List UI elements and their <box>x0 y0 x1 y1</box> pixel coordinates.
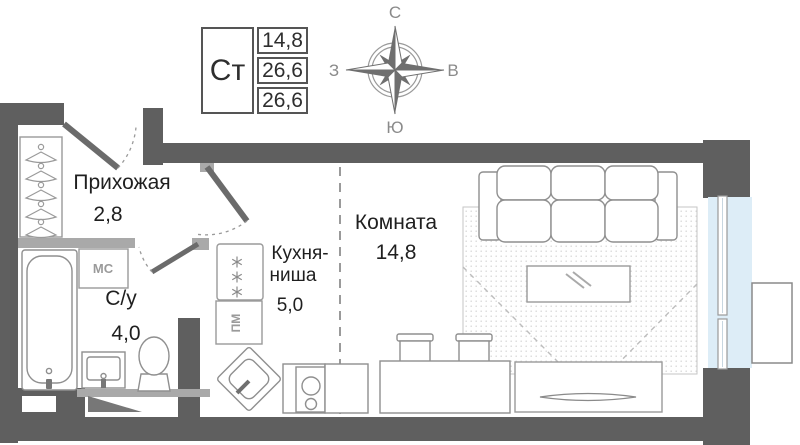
compass-rose: С Ю З В <box>329 3 459 137</box>
compass-north-label: С <box>389 3 401 22</box>
chair <box>397 334 433 362</box>
window-glass <box>708 197 752 368</box>
wall-bottom-outer <box>0 417 705 441</box>
riser-wedge <box>88 396 142 412</box>
dining-table <box>380 361 510 413</box>
chair <box>456 334 492 362</box>
tv-stand <box>515 362 662 412</box>
compass-west-label: З <box>329 61 339 80</box>
compass-south-label: Ю <box>386 118 403 137</box>
vent-shaft <box>22 396 56 412</box>
wall-window-pier-bottom <box>703 368 750 445</box>
hallway-area-label: 2,8 <box>93 203 122 226</box>
entrance-door-swing <box>118 127 136 168</box>
floor-plan-page: Ст 14,8 26,6 26,6 <box>0 0 800 445</box>
cooktop <box>283 364 325 413</box>
compass-east-label: В <box>447 61 458 80</box>
kitchen-area-label: 5,0 <box>277 295 303 316</box>
bathtub <box>22 250 77 390</box>
kitchen-name-label-line2: ниша <box>270 265 317 286</box>
wall-top-hallway <box>0 103 64 125</box>
compass-cardinal-points <box>346 26 444 114</box>
sofa <box>479 166 677 242</box>
hallway-name-label: Прихожая <box>73 171 170 194</box>
washbasin <box>82 352 125 388</box>
coffee-table <box>527 266 630 302</box>
basin-faucet-icon <box>101 379 106 388</box>
wardrobe <box>20 137 62 238</box>
kitchen-sink <box>216 346 281 411</box>
balcony-outline <box>752 283 792 363</box>
window <box>708 196 752 369</box>
room-door-swing <box>195 221 247 235</box>
kitchen-counter <box>325 364 368 413</box>
wall-window-pier-top <box>703 140 750 198</box>
entrance-door-leaf <box>64 124 118 168</box>
kitchen-name-label-line1: Кухня- <box>271 243 328 264</box>
living-name-label: Комната <box>355 211 438 234</box>
wall-top-main <box>143 143 705 163</box>
tub-faucet-icon <box>46 379 52 389</box>
fridge <box>217 244 263 300</box>
living-area-label: 14,8 <box>376 241 417 264</box>
bathroom-door-swing <box>139 247 152 272</box>
bathroom-door-leaf <box>152 244 198 272</box>
room-door-leaf <box>207 167 247 221</box>
toilet <box>138 337 170 391</box>
floor-plan-drawing: С Ю З В Прихожая 2,8 С/у 4,0 Кухня- ниша… <box>0 0 800 445</box>
partition-hallway-bathroom <box>18 238 135 248</box>
bathroom-name-label: С/у <box>105 287 137 310</box>
washing-machine-label: МС <box>93 261 114 276</box>
bathroom-area-label: 4,0 <box>111 322 140 345</box>
wall-bathroom-right <box>178 318 200 418</box>
dishwasher-label: ПМ <box>229 314 243 333</box>
